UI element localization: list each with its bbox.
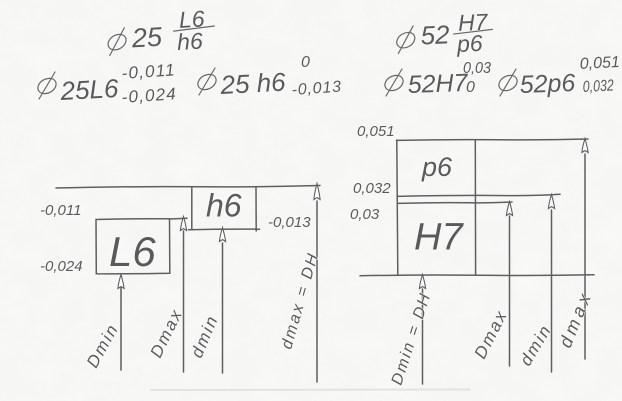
svg-text:-0,013: -0,013 [291, 79, 342, 99]
svg-text:52: 52 [420, 19, 451, 50]
svg-text:25L6: 25L6 [59, 73, 120, 106]
svg-text:0,051: 0,051 [579, 54, 620, 73]
svg-text:0,03: 0,03 [463, 60, 491, 77]
svg-text:-0,013: -0,013 [268, 214, 311, 231]
svg-text:0: 0 [301, 54, 310, 71]
svg-text:-0,011: -0,011 [121, 60, 176, 83]
svg-text:p6: p6 [421, 152, 453, 182]
svg-text:52H7: 52H7 [407, 69, 469, 99]
svg-text:-0,024: -0,024 [121, 84, 178, 107]
svg-text:0,032: 0,032 [582, 77, 614, 96]
svg-text:-0,024: -0,024 [40, 258, 83, 275]
svg-text:0,051: 0,051 [357, 123, 395, 140]
svg-text:0,032: 0,032 [353, 180, 391, 197]
svg-text:h6: h6 [176, 28, 203, 55]
svg-text:H7: H7 [414, 217, 464, 259]
svg-text:52p6: 52p6 [519, 69, 576, 99]
svg-text:L6: L6 [109, 228, 156, 275]
svg-text:p6: p6 [455, 30, 483, 57]
svg-text:0,03: 0,03 [350, 206, 380, 223]
svg-text:25: 25 [130, 22, 164, 54]
svg-text:0: 0 [466, 79, 475, 96]
svg-text:-0,011: -0,011 [40, 202, 81, 219]
svg-text:25 h6: 25 h6 [219, 67, 287, 100]
svg-text:h6: h6 [206, 188, 242, 224]
